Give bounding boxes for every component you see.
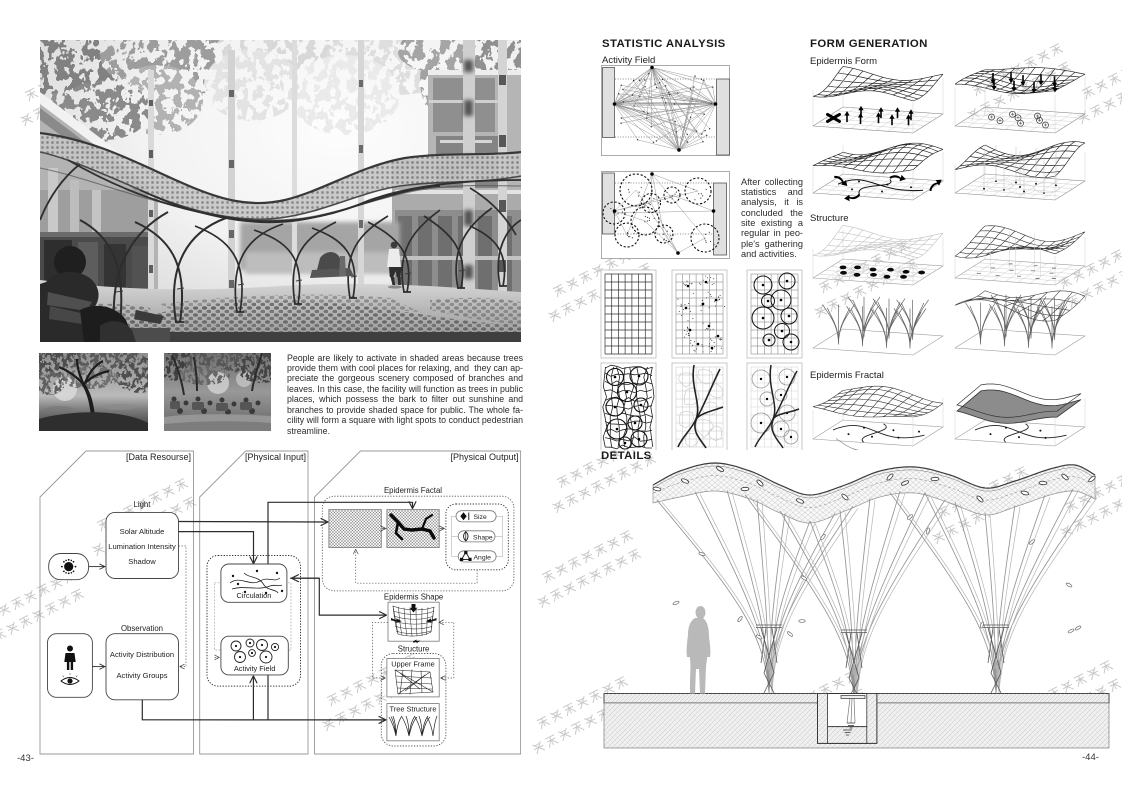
svg-text:Epidermis Shape: Epidermis Shape (384, 593, 443, 602)
svg-text:[Physical Input]: [Physical Input] (245, 452, 306, 462)
svg-text:Structure: Structure (398, 645, 430, 654)
svg-text:Upper Frame: Upper Frame (391, 660, 435, 669)
svg-text:Lumination Intensity: Lumination Intensity (108, 542, 176, 551)
svg-text:Light: Light (134, 500, 152, 509)
svg-text:Shadow: Shadow (128, 557, 156, 566)
svg-text:Solar Altitude: Solar Altitude (120, 527, 165, 536)
svg-text:Tree Structure: Tree Structure (390, 705, 437, 714)
svg-text:Activity Field: Activity Field (234, 664, 275, 673)
svg-text:Activity Groups: Activity Groups (116, 671, 167, 680)
svg-text:Observation: Observation (121, 624, 163, 633)
svg-text:Epidermis Factal: Epidermis Factal (384, 486, 442, 495)
svg-text:Shape: Shape (473, 534, 493, 541)
svg-text:Size: Size (474, 514, 487, 521)
svg-text:Angle: Angle (474, 554, 492, 561)
svg-text:Activity Distribution: Activity Distribution (110, 650, 174, 659)
svg-text:[Data Resourse]: [Data Resourse] (126, 452, 191, 462)
svg-text:[Physical Output]: [Physical Output] (451, 452, 519, 462)
